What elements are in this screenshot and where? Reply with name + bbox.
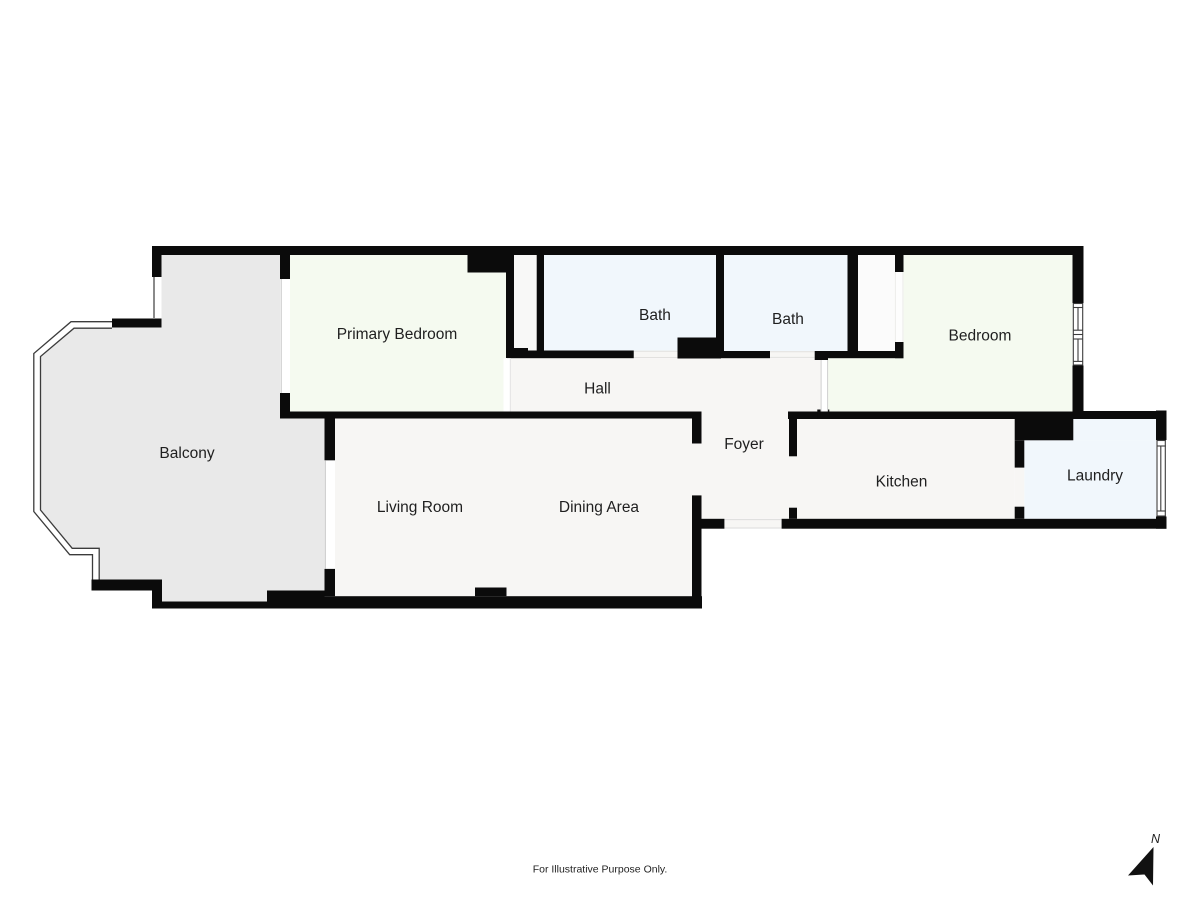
svg-text:Hall: Hall [584,381,611,398]
svg-text:Kitchen: Kitchen [876,474,928,491]
svg-text:Bath: Bath [639,307,671,324]
svg-text:Laundry: Laundry [1067,468,1123,485]
svg-text:Balcony: Balcony [159,445,214,462]
svg-text:For Illustrative Purpose Only.: For Illustrative Purpose Only. [533,864,668,876]
svg-text:Living Room: Living Room [377,499,463,516]
svg-text:Dining Area: Dining Area [559,499,640,516]
svg-text:Bedroom: Bedroom [949,328,1012,345]
svg-text:N: N [1151,832,1161,846]
svg-text:Bath: Bath [772,311,804,328]
svg-text:Primary Bedroom: Primary Bedroom [337,326,458,343]
svg-text:Foyer: Foyer [724,436,764,453]
